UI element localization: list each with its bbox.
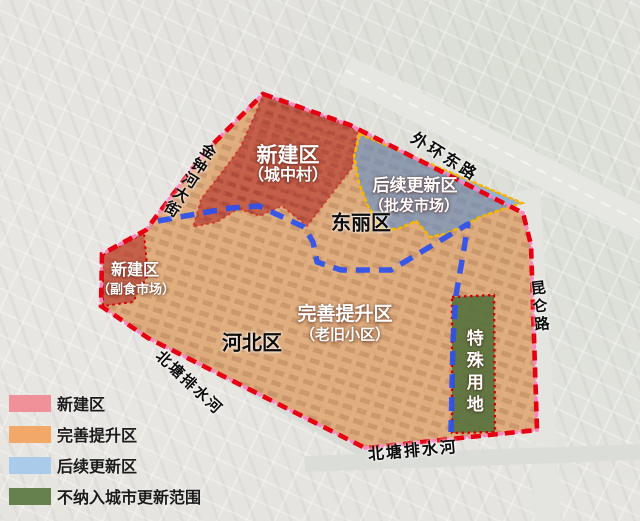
planning-map: 新建区 （城中村） 后续更新区 （批发市场） 新建区 （副食市场） 完善提升区 … — [0, 0, 640, 521]
legend-swatch-wanshan — [9, 426, 51, 443]
legend-swatch-buna-ru — [9, 488, 51, 505]
legend-label-houxu: 后续更新区 — [57, 453, 137, 477]
legend-item-xinjian: 新建区 — [9, 394, 201, 412]
legend-swatch-houxu — [9, 457, 51, 474]
legend-item-wanshan: 完善提升区 — [9, 425, 201, 443]
zone-label-houxu-gengxin: 后续更新区 — [373, 176, 458, 196]
legend-label-wanshan: 完善提升区 — [57, 422, 137, 446]
legend: 新建区 完善提升区 后续更新区 不纳入城市更新范围 — [9, 394, 201, 518]
legend-label-buna-ru: 不纳入城市更新范围 — [57, 484, 201, 508]
district-label-hebei: 河北区 — [222, 333, 282, 356]
zone-sublabel-chengzhongcun: （城中村） — [248, 167, 328, 185]
zone-sublabel-laojiu-xiaoqu: （老旧小区） — [300, 326, 390, 343]
zone-sublabel-fushi-shichang: （副食市场） — [97, 283, 175, 298]
zone-label-teshu-yongdi: 特殊用地 — [463, 329, 483, 417]
zone-label-xinjian-fushi: 新建区 — [111, 262, 159, 280]
legend-item-houxu: 后续更新区 — [9, 456, 201, 474]
legend-label-xinjian: 新建区 — [57, 391, 105, 415]
district-label-dongli: 东丽区 — [331, 213, 391, 236]
legend-item-buna-ru: 不纳入城市更新范围 — [9, 487, 201, 505]
legend-swatch-xinjian — [9, 395, 51, 412]
zone-label-wanshan-tisheng: 完善提升区 — [297, 304, 392, 326]
zone-label-xinjian-chengzhongcun: 新建区 — [257, 144, 320, 168]
